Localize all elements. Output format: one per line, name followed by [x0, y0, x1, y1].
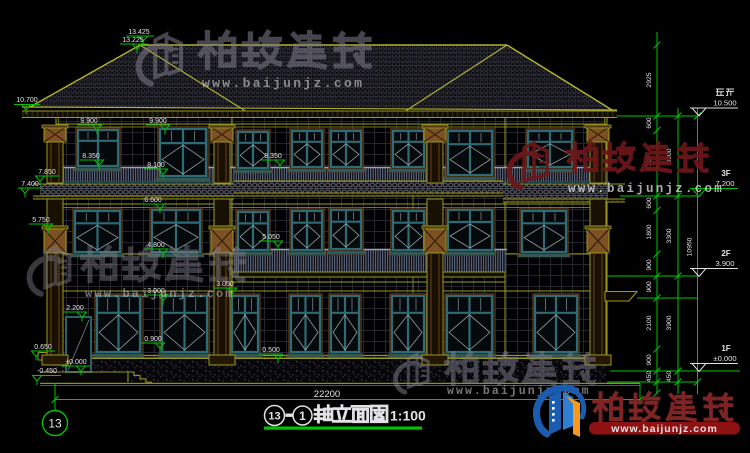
svg-text:900: 900	[646, 281, 653, 293]
svg-text:8.350: 8.350	[82, 153, 100, 160]
svg-text:www.baijunjz.com: www.baijunjz.com	[610, 423, 718, 435]
svg-text:900: 900	[646, 354, 653, 366]
svg-text:600: 600	[646, 117, 653, 129]
svg-text:2925: 2925	[646, 72, 653, 87]
svg-text:2100: 2100	[646, 315, 653, 330]
svg-text:1800: 1800	[646, 224, 653, 239]
svg-text:3300: 3300	[666, 228, 673, 243]
svg-text:±0.000: ±0.000	[713, 354, 736, 363]
svg-text:0.900: 0.900	[144, 336, 162, 343]
svg-text:7.850: 7.850	[38, 169, 56, 176]
svg-text:10950: 10950	[687, 237, 694, 256]
svg-text:2F: 2F	[721, 249, 730, 258]
svg-text:9.900: 9.900	[80, 118, 98, 125]
svg-text:600: 600	[646, 197, 653, 209]
svg-text:6.600: 6.600	[144, 197, 162, 204]
svg-text:13.225: 13.225	[122, 37, 144, 44]
svg-text:1F: 1F	[721, 344, 730, 353]
svg-text:3.900: 3.900	[715, 259, 734, 268]
svg-text:-0.450: -0.450	[37, 368, 57, 375]
svg-text:13.425: 13.425	[128, 29, 150, 36]
svg-text:900: 900	[646, 259, 653, 271]
svg-text:5.750: 5.750	[32, 217, 50, 224]
svg-text:www.baijunjz.com: www.baijunjz.com	[85, 287, 235, 301]
svg-text:±0.000: ±0.000	[65, 359, 86, 366]
svg-text:13: 13	[268, 411, 280, 423]
svg-text:450: 450	[666, 371, 673, 383]
svg-text:2.200: 2.200	[66, 305, 84, 312]
svg-text:8.350: 8.350	[264, 153, 282, 160]
svg-text:3F: 3F	[721, 169, 730, 178]
svg-text:www.baijunjz.com: www.baijunjz.com	[568, 182, 724, 196]
svg-text:3900: 3900	[666, 315, 673, 330]
svg-text:22200: 22200	[314, 389, 340, 400]
svg-text:7.400: 7.400	[21, 181, 39, 188]
svg-text:4.800: 4.800	[147, 242, 165, 249]
svg-text:0.650: 0.650	[34, 344, 52, 351]
svg-text:5.050: 5.050	[262, 234, 280, 241]
svg-text:9.900: 9.900	[149, 118, 167, 125]
svg-text:8.100: 8.100	[147, 162, 165, 169]
svg-text:10.700: 10.700	[16, 97, 38, 104]
svg-text:0.500: 0.500	[262, 347, 280, 354]
svg-text:www.baijunjz.com: www.baijunjz.com	[202, 76, 364, 91]
svg-text:450: 450	[646, 371, 653, 383]
svg-text:10.500: 10.500	[713, 99, 736, 108]
svg-text:1: 1	[299, 409, 306, 423]
svg-text:1:100: 1:100	[390, 408, 426, 424]
svg-text:13: 13	[48, 417, 62, 431]
